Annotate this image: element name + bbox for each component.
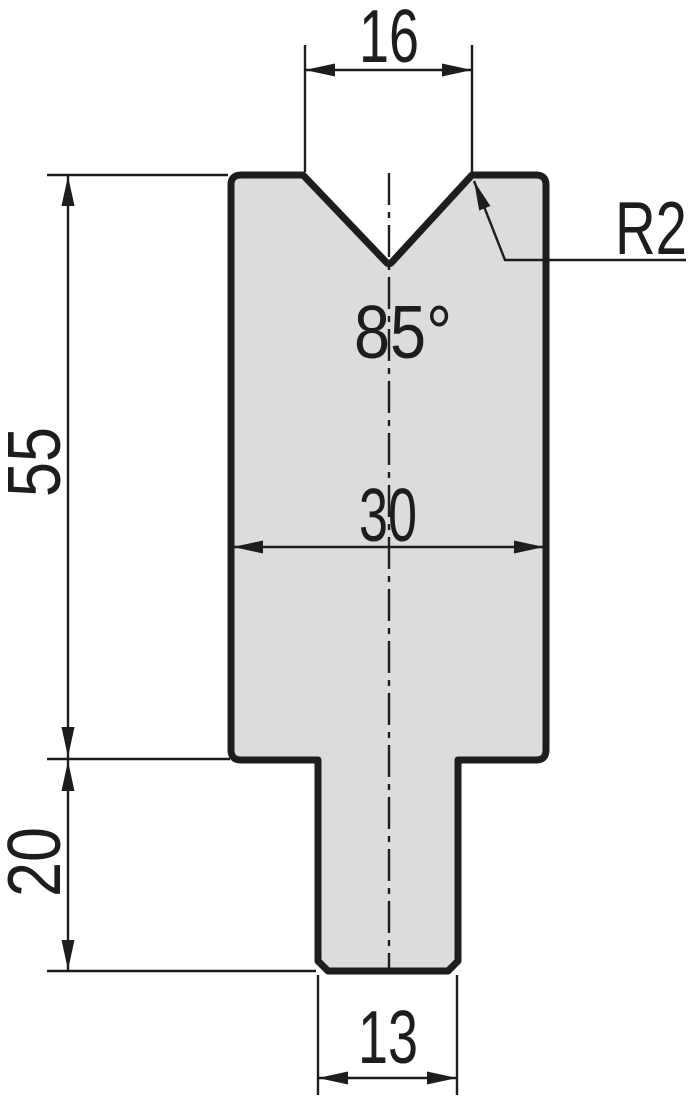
dim-text-vee-angle: 85° bbox=[354, 290, 452, 374]
dim-text-tang-height: 20 bbox=[0, 827, 76, 897]
arrow-55-down bbox=[62, 727, 75, 757]
dim-text-vee-radius: R2 bbox=[615, 186, 687, 270]
dim-text-body-height: 55 bbox=[0, 427, 76, 497]
drawing-canvas: 16 85° R2 30 55 20 13 bbox=[0, 0, 688, 1102]
dim-text-vee-opening: 16 bbox=[359, 0, 419, 78]
dim-text-body-width: 30 bbox=[359, 473, 417, 557]
arrow-13-left bbox=[318, 1072, 348, 1085]
die-technical-drawing: 16 85° R2 30 55 20 13 bbox=[0, 0, 688, 1102]
arrow-20-down bbox=[62, 940, 75, 970]
arrow-13-right bbox=[427, 1072, 457, 1085]
arrow-16-left bbox=[305, 64, 335, 77]
dim-text-tang-width: 13 bbox=[358, 995, 418, 1079]
arrow-55-up bbox=[62, 176, 75, 206]
arrow-20-up bbox=[62, 761, 75, 791]
arrow-16-right bbox=[442, 64, 472, 77]
